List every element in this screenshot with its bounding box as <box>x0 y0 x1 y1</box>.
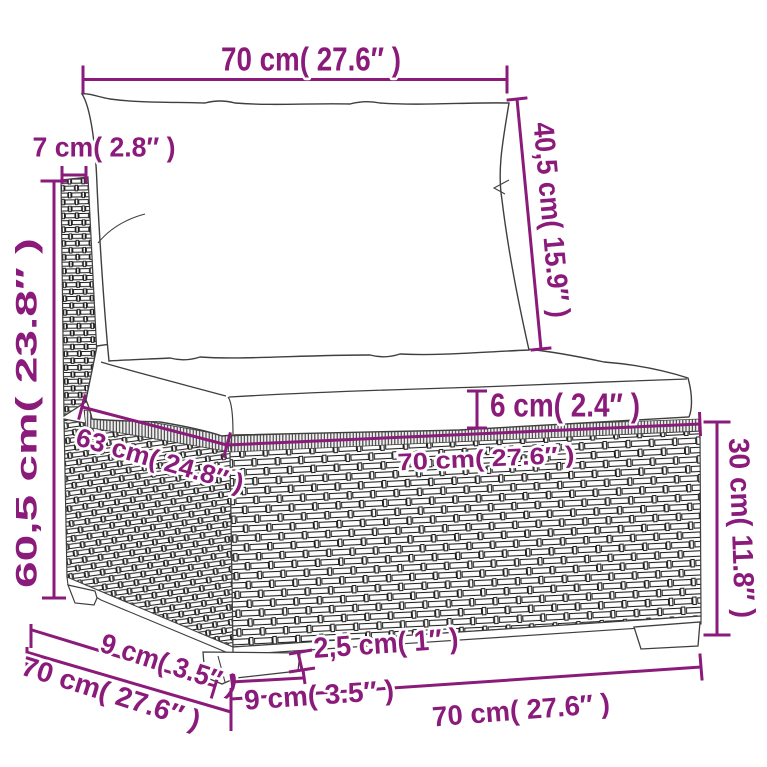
svg-text:30 cm( 11.8″ ): 30 cm( 11.8″ ) <box>722 437 760 618</box>
svg-text:7 cm( 2.8″ ): 7 cm( 2.8″ ) <box>33 132 176 163</box>
svg-text:6 cm( 2.4″ ): 6 cm( 2.4″ ) <box>490 387 640 424</box>
svg-text:60,5 cm( 23.8″ ): 60,5 cm( 23.8″ ) <box>11 238 44 588</box>
svg-text:70 cm( 27.6″ ): 70 cm( 27.6″ ) <box>221 41 401 78</box>
